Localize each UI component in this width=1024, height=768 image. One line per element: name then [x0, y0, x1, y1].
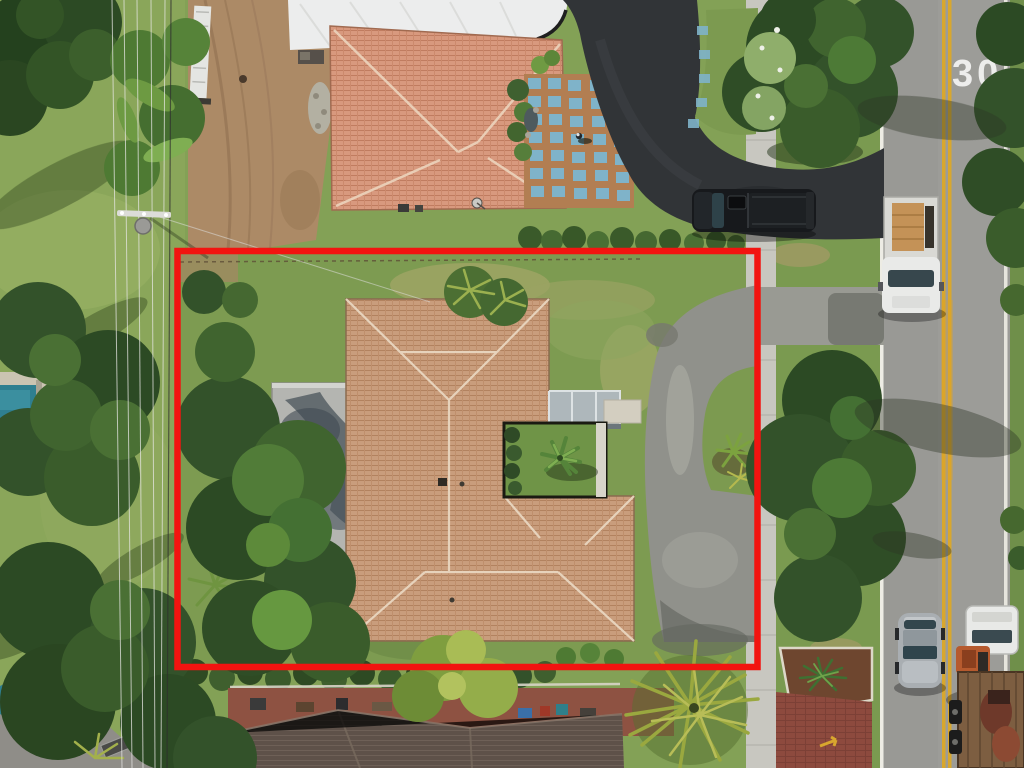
black-pickup-truck [692, 189, 816, 242]
aerial-photo: 30 [0, 0, 1024, 768]
transformer [135, 218, 151, 234]
aerial-scene: 30 [0, 0, 1024, 768]
courtyard [504, 423, 606, 497]
corner-landscape-island [776, 648, 872, 768]
silver-sedan [894, 613, 946, 696]
brick-crosswalk [776, 692, 872, 768]
white-box-truck [878, 197, 946, 322]
entry-walk-pad [604, 400, 641, 423]
